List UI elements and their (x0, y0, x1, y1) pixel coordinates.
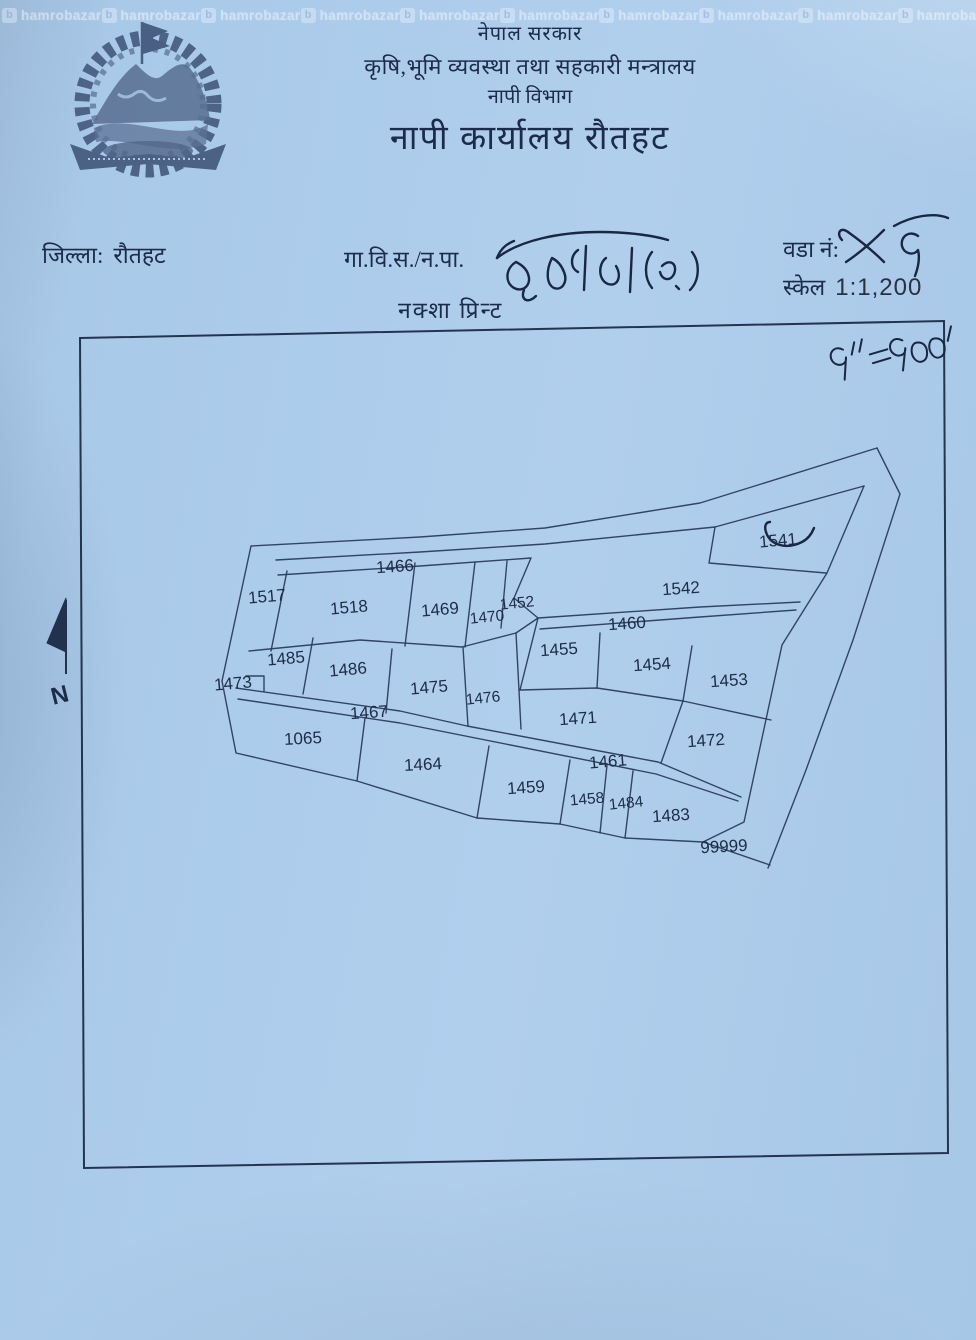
north-arrow: N (47, 598, 72, 711)
parcel-label: 1458 (569, 790, 605, 810)
map-frame (80, 321, 948, 1168)
scanned-survey-map-document: नेपाल सरकार कृषि,भूमि व्यवस्था तथा सहकार… (0, 0, 976, 1340)
parcel-label: 1454 (632, 654, 671, 676)
parcel-label: 1485 (266, 647, 305, 669)
parcel-label: 1518 (329, 596, 368, 618)
parcel-label: 1467 (349, 702, 388, 724)
parcel-label: 1541 (758, 529, 797, 551)
parcel-label: 1483 (651, 805, 690, 827)
parcel-label: 1475 (409, 676, 448, 698)
parcel-label: 1461 (588, 750, 627, 772)
parcel-label: 1452 (499, 593, 535, 614)
parcel-label: 1460 (607, 613, 646, 635)
parcel-label: 1065 (284, 728, 323, 749)
scale-note-handwriting (829, 326, 956, 381)
parcel-label: 1472 (686, 730, 725, 752)
parcel-label: 1459 (506, 777, 545, 799)
north-label: N (48, 680, 71, 710)
parcel-label: 1517 (247, 585, 286, 607)
parcel-label: 1464 (404, 754, 443, 775)
parcel-label: 1469 (420, 598, 459, 620)
parcel-label: 1453 (709, 670, 748, 692)
parcel-label: 1476 (465, 688, 501, 709)
vdc-value-handwriting (497, 232, 698, 300)
parcel-label: 1471 (558, 708, 597, 730)
ward-value-handwriting (839, 215, 948, 276)
parcel-label: 99999 (700, 836, 748, 857)
parcel-label: 1466 (375, 556, 414, 578)
parcel-label: 1542 (661, 578, 700, 600)
parcel-label: 1455 (539, 639, 578, 661)
parcel-label: 1486 (328, 658, 367, 680)
parcel-label: 1473 (213, 672, 252, 694)
cadastral-map-canvas: N (0, 0, 976, 1340)
parcel-label: 1484 (608, 793, 644, 814)
